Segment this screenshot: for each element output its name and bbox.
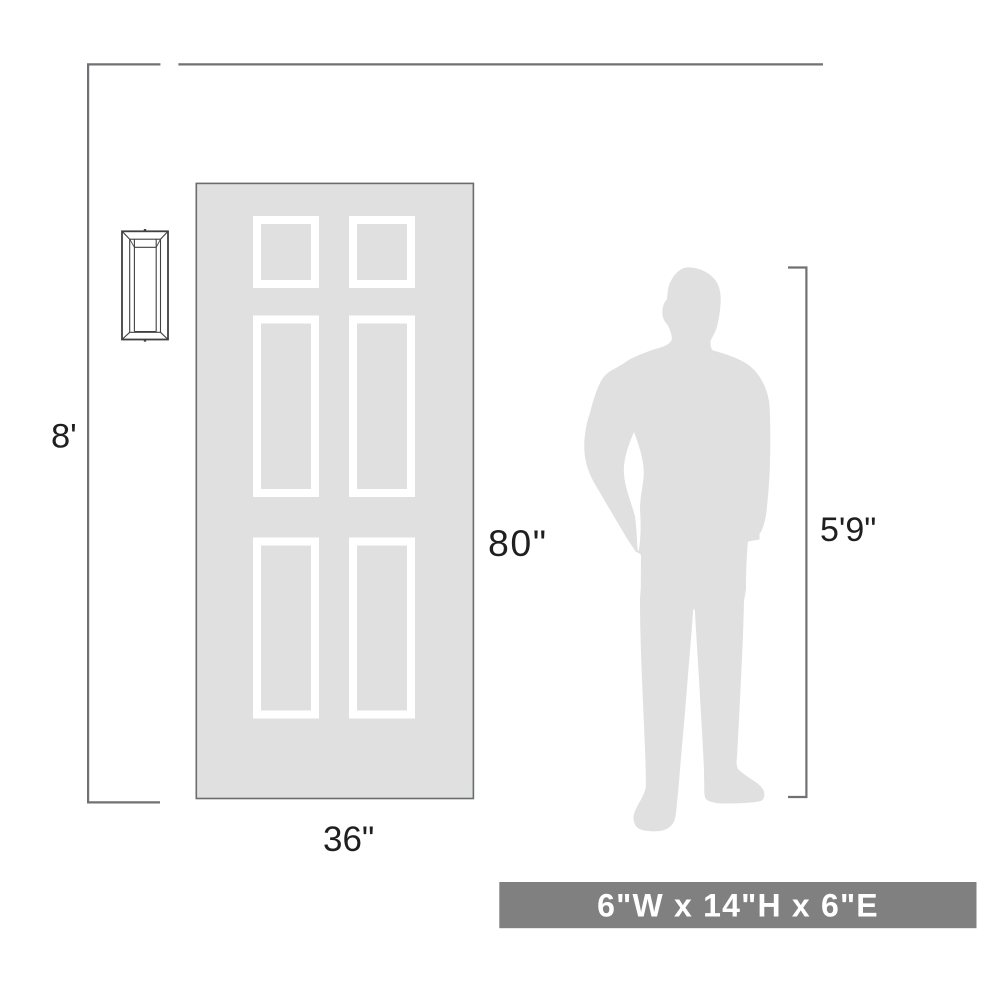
svg-text:36": 36": [323, 820, 374, 859]
svg-text:5'9": 5'9": [820, 511, 876, 549]
svg-text:80": 80": [488, 522, 548, 564]
svg-text:8': 8': [51, 418, 77, 456]
svg-text:6"W x 14"H x 6"E: 6"W x 14"H x 6"E: [597, 888, 879, 924]
